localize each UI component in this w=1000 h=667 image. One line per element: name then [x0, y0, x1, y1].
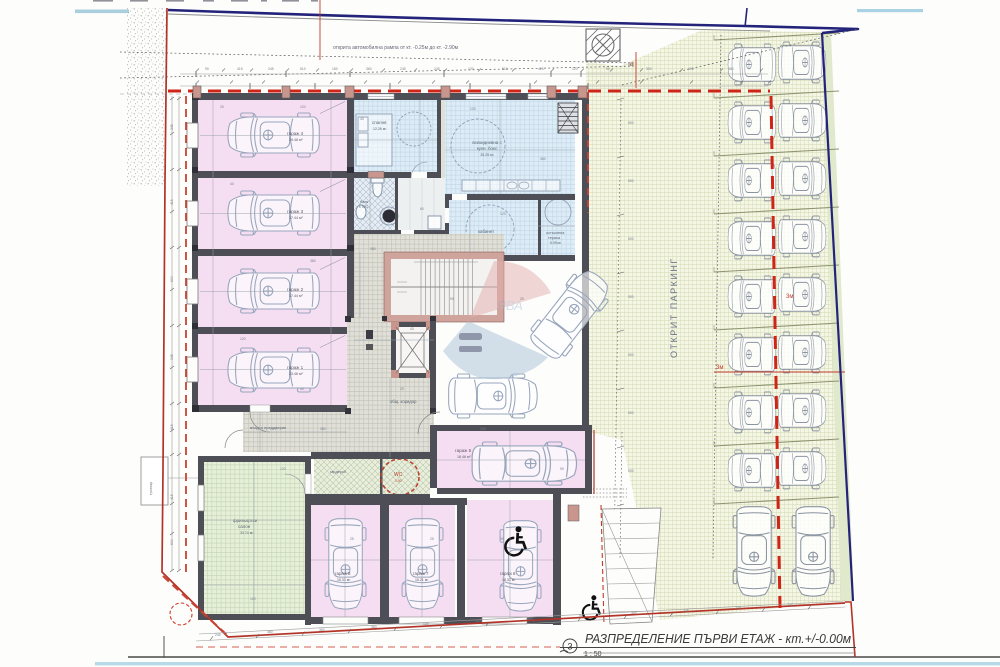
svg-text:415: 415	[170, 494, 174, 500]
svg-text:90: 90	[500, 537, 504, 541]
svg-text:23.46 м²: 23.46 м²	[289, 372, 303, 376]
svg-text:25: 25	[400, 387, 404, 391]
svg-text:1 : 50: 1 : 50	[584, 651, 602, 658]
svg-text:гардероб: гардероб	[330, 470, 347, 474]
svg-text:500: 500	[628, 353, 634, 357]
svg-text:500: 500	[628, 237, 634, 241]
svg-text:40: 40	[300, 387, 304, 391]
svg-text:всекидневна с: всекидневна с	[472, 140, 502, 145]
svg-text:360: 360	[366, 67, 372, 71]
svg-text:остъклена: остъклена	[546, 231, 565, 235]
svg-text:спалня: спалня	[372, 120, 387, 125]
svg-text:гараж 5: гараж 5	[455, 448, 472, 453]
svg-text:500: 500	[628, 295, 634, 299]
svg-text:ОТКРИТ ПАРКИНГ: ОТКРИТ ПАРКИНГ	[669, 257, 679, 358]
svg-text:120: 120	[280, 467, 286, 471]
svg-text:500: 500	[628, 121, 634, 125]
svg-text:120: 120	[572, 67, 578, 71]
svg-text:360: 360	[267, 630, 273, 634]
svg-text:1.90: 1.90	[395, 479, 402, 483]
svg-text:360: 360	[728, 67, 734, 71]
svg-text:РАЗПРЕДЕЛЕНИЕ ПЪРВИ ЕТАЖ - кт.: РАЗПРЕДЕЛЕНИЕ ПЪРВИ ЕТАЖ - кт.+/-0.00м	[585, 631, 851, 646]
svg-text:18.33 м²: 18.33 м²	[502, 578, 516, 582]
svg-text:345: 345	[170, 124, 174, 130]
svg-text:90: 90	[450, 297, 454, 301]
svg-text:17.44 м²: 17.44 м²	[289, 216, 303, 220]
svg-text:245: 245	[268, 67, 274, 71]
svg-text:500: 500	[628, 63, 634, 67]
svg-text:15.33 м²: 15.33 м²	[337, 578, 351, 582]
svg-text:120: 120	[470, 107, 476, 111]
svg-text:300: 300	[475, 619, 481, 623]
svg-text:245: 245	[735, 606, 741, 610]
svg-text:415: 415	[170, 424, 174, 430]
svg-text:510: 510	[300, 67, 306, 71]
svg-text:500: 500	[628, 179, 634, 183]
svg-text:салон: салон	[238, 524, 251, 529]
svg-text:тротоар: тротоар	[149, 482, 153, 495]
svg-text:общ. коридор: общ. коридор	[390, 399, 417, 404]
svg-text:18.46 м²: 18.46 м²	[457, 455, 471, 459]
svg-text:3: 3	[567, 642, 572, 652]
svg-text:90: 90	[205, 67, 209, 71]
svg-text:300: 300	[646, 67, 652, 71]
svg-text:415: 415	[688, 67, 694, 71]
svg-text:гараж 6: гараж 6	[500, 571, 516, 576]
svg-text:90: 90	[560, 467, 564, 471]
svg-text:с WC: с WC	[359, 205, 369, 209]
svg-text:510: 510	[502, 67, 508, 71]
svg-text:открита автомобилна рампа от к: открита автомобилна рампа от кт. -0.25м …	[333, 45, 459, 51]
svg-text:120: 120	[300, 105, 306, 109]
svg-text:300: 300	[631, 611, 637, 615]
svg-text:120: 120	[423, 622, 429, 626]
svg-text:345: 345	[170, 354, 174, 360]
svg-text:33.74 м²: 33.74 м²	[240, 531, 254, 535]
svg-text:245: 245	[683, 609, 689, 613]
svg-text:ЯВА: ЯВА	[496, 298, 523, 313]
svg-text:415: 415	[170, 199, 174, 205]
svg-text:360: 360	[371, 625, 377, 629]
svg-text:380: 380	[310, 259, 316, 263]
svg-text:120: 120	[468, 67, 474, 71]
svg-text:360: 360	[527, 617, 533, 621]
svg-text:3м: 3м	[716, 365, 723, 371]
svg-text:5.09 м²: 5.09 м²	[550, 241, 562, 245]
svg-text:25: 25	[220, 105, 224, 109]
svg-text:245: 245	[434, 67, 440, 71]
svg-text:17.44 м²: 17.44 м²	[289, 294, 303, 298]
svg-text:25.25 м²: 25.25 м²	[480, 153, 494, 157]
svg-text:40: 40	[230, 182, 234, 186]
svg-text:245: 245	[215, 633, 221, 637]
svg-text:90: 90	[606, 67, 610, 71]
svg-text:кабинет: кабинет	[478, 229, 494, 234]
svg-text:25: 25	[430, 537, 434, 541]
svg-text:40: 40	[360, 117, 364, 121]
svg-text:120: 120	[250, 597, 256, 601]
svg-text:12.26 м²: 12.26 м²	[373, 127, 387, 131]
svg-text:WC: WC	[394, 472, 403, 478]
svg-text:500: 500	[628, 411, 634, 415]
svg-text:380: 380	[540, 157, 546, 161]
svg-text:90: 90	[579, 614, 583, 618]
svg-text:25: 25	[520, 297, 524, 301]
svg-text:360: 360	[319, 628, 325, 632]
svg-text:баня: баня	[360, 200, 368, 204]
svg-text:500: 500	[628, 469, 634, 473]
svg-text:120: 120	[240, 337, 246, 341]
svg-text:25: 25	[350, 537, 354, 541]
svg-text:600: 600	[170, 276, 174, 282]
svg-text:120: 120	[500, 212, 506, 216]
svg-text:гараж 7: гараж 7	[413, 571, 429, 576]
svg-text:60: 60	[420, 207, 424, 211]
svg-text:380: 380	[320, 427, 326, 431]
svg-text:380: 380	[370, 247, 376, 251]
svg-text:415: 415	[237, 67, 243, 71]
svg-text:40: 40	[410, 327, 414, 331]
svg-text:19.48 м²: 19.48 м²	[289, 138, 303, 142]
svg-text:3м: 3м	[786, 294, 793, 300]
svg-text:600: 600	[170, 539, 174, 545]
svg-text:тераса: тераса	[548, 236, 561, 240]
svg-text:245: 245	[400, 67, 406, 71]
svg-text:415: 415	[538, 67, 544, 71]
svg-text:гараж 8: гараж 8	[335, 571, 351, 576]
svg-text:120: 120	[480, 427, 486, 431]
svg-text:150: 150	[332, 67, 338, 71]
svg-text:245: 245	[787, 603, 793, 607]
